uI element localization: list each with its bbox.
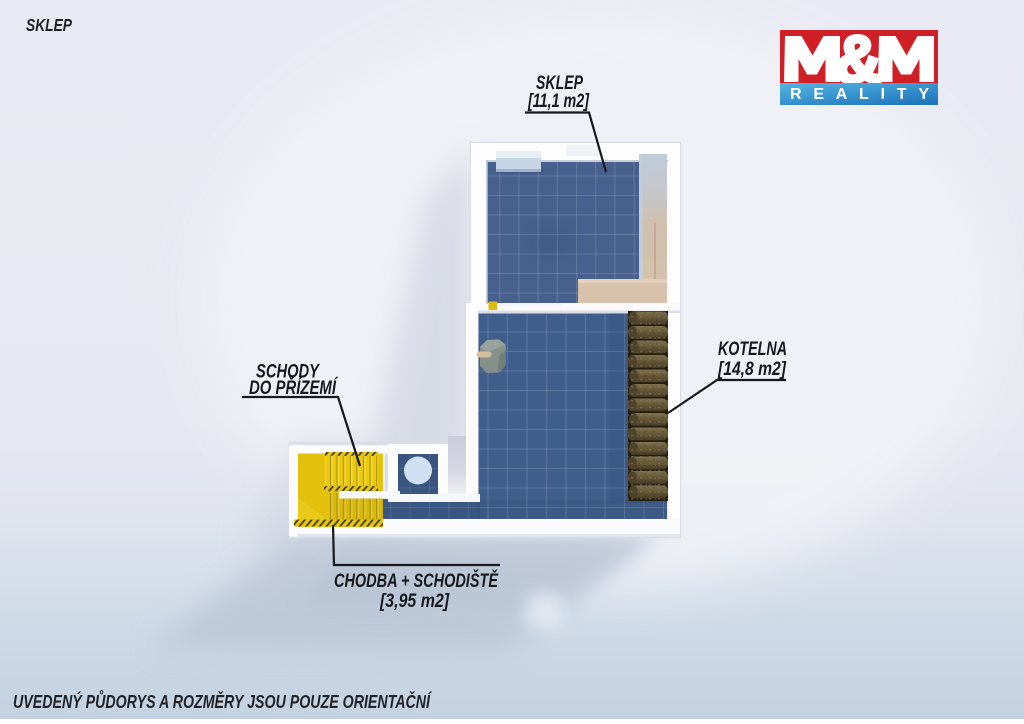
svg-text:SKLEP: SKLEP (26, 15, 72, 35)
svg-text:UVEDENÝ PŮDORYS A ROZMĚRY JSOU: UVEDENÝ PŮDORYS A ROZMĚRY JSOU POUZE ORI… (13, 690, 432, 712)
svg-text:DO PŘÍZEMÍ: DO PŘÍZEMÍ (249, 377, 339, 399)
svg-text:[3,95 m2]: [3,95 m2] (379, 591, 449, 612)
svg-text:CHODBA + SCHODIŠTĚ: CHODBA + SCHODIŠTĚ (334, 570, 499, 592)
svg-text:KOTELNA: KOTELNA (718, 339, 787, 360)
svg-text:[14,8 m2]: [14,8 m2] (717, 359, 786, 380)
svg-text:[11,1 m2]: [11,1 m2] (527, 91, 589, 112)
